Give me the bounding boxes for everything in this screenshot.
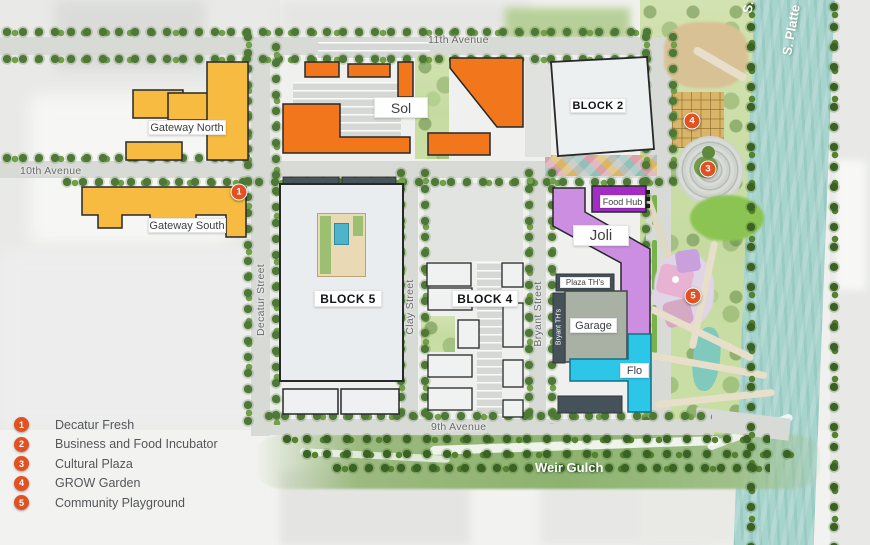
building-block-4-unit <box>503 303 523 347</box>
label-bryant-ths: Bryant TH's <box>556 309 563 345</box>
building-sol <box>305 62 339 77</box>
label-text: BLOCK 4 <box>457 292 512 306</box>
street-label-decatur: Decatur Street <box>255 264 267 336</box>
legend-item: 3 Cultural Plaza <box>14 456 218 471</box>
building-sol-main <box>450 58 523 127</box>
street-label-10th-avenue: 10th Avenue <box>20 165 82 177</box>
label-sol: Sol <box>374 97 428 118</box>
map-marker-5: 5 <box>685 288 702 305</box>
legend-marker-4: 4 <box>14 476 29 491</box>
building-block-4-unit <box>458 320 479 348</box>
building-block-4-unit <box>503 400 523 417</box>
legend-label: Decatur Fresh <box>55 418 134 432</box>
street-label-bryant: Bryant Street <box>532 281 544 346</box>
label-text: Gateway North <box>150 122 223 134</box>
map-marker-1: 1 <box>231 184 248 201</box>
label-text: Sol <box>391 100 411 116</box>
label-text: Plaza TH's <box>566 278 604 287</box>
legend-label: Cultural Plaza <box>55 457 133 471</box>
building-gateway-north-wing <box>168 93 210 120</box>
legend-marker-3: 3 <box>14 456 29 471</box>
building-block-4-unit <box>502 263 523 287</box>
label-block-2: BLOCK 2 <box>570 98 626 113</box>
label-flo: Flo <box>620 363 649 378</box>
label-text: Garage <box>575 320 612 332</box>
legend-marker-1: 1 <box>14 417 29 432</box>
legend: 1 Decatur Fresh 2 Business and Food Incu… <box>14 417 218 515</box>
building-sol <box>348 64 390 77</box>
courtyard-green <box>353 216 363 236</box>
courtyard-pool <box>334 223 349 245</box>
marker-number: 4 <box>689 116 694 127</box>
food-hub-detail <box>646 197 650 201</box>
street-label-clay: Clay Street <box>404 279 416 334</box>
label-text: Gateway South <box>149 220 224 232</box>
street-label-9th-avenue: 9th Avenue <box>431 421 486 433</box>
food-hub-detail <box>646 204 650 208</box>
map-marker-4: 4 <box>684 113 701 130</box>
label-plaza-ths: Plaza TH's <box>560 277 610 288</box>
building-block-4-unit <box>503 360 523 387</box>
marker-number: 5 <box>690 291 695 302</box>
map-marker-3: 3 <box>700 161 717 178</box>
label-text: Food Hub <box>603 197 643 207</box>
legend-item: 4 GROW Garden <box>14 476 218 491</box>
street-label-11th-avenue: 11th Avenue <box>428 34 489 46</box>
label-food-hub: Food Hub <box>600 195 645 208</box>
label-text: BLOCK 2 <box>572 100 623 112</box>
legend-item: 5 Community Playground <box>14 495 218 510</box>
building-block-4-unit <box>428 388 472 410</box>
legend-label: Community Playground <box>55 496 185 510</box>
building-sol <box>398 62 413 97</box>
building-block-4-unit <box>427 263 471 286</box>
food-hub-detail <box>646 190 650 194</box>
building-block-5-rowhouse <box>283 389 338 414</box>
legend-label: Business and Food Incubator <box>55 437 218 451</box>
gulch-label-weir-gulch: Weir Gulch <box>535 460 603 475</box>
label-block-5: BLOCK 5 <box>314 290 382 307</box>
label-gateway-south: Gateway South <box>148 218 226 233</box>
marker-number: 3 <box>705 164 710 175</box>
courtyard-green <box>320 216 331 274</box>
label-garage: Garage <box>570 318 617 333</box>
building-block-4-unit <box>428 355 472 377</box>
label-joli: Joli <box>573 225 629 246</box>
label-text: Flo <box>627 365 642 377</box>
building-block-5-rowhouse <box>341 389 399 414</box>
river-label-s-platte-partial: S. <box>740 0 757 14</box>
label-text: Joli <box>590 227 613 244</box>
legend-label: GROW Garden <box>55 476 140 490</box>
building-gateway-north-wing <box>126 142 182 160</box>
legend-item: 2 Business and Food Incubator <box>14 437 218 452</box>
site-plan-map: Gateway North Gateway South Sol BLOCK 2 … <box>0 0 870 545</box>
label-block-4: BLOCK 4 <box>452 290 518 307</box>
legend-marker-5: 5 <box>14 495 29 510</box>
building-gateway-north-tower <box>207 62 248 160</box>
building-sol <box>428 133 490 155</box>
label-text: BLOCK 5 <box>320 292 375 306</box>
building-rowhouse-south <box>558 396 622 413</box>
legend-marker-2: 2 <box>14 437 29 452</box>
legend-item: 1 Decatur Fresh <box>14 417 218 432</box>
marker-number: 1 <box>236 187 241 198</box>
label-gateway-north: Gateway North <box>148 120 226 135</box>
